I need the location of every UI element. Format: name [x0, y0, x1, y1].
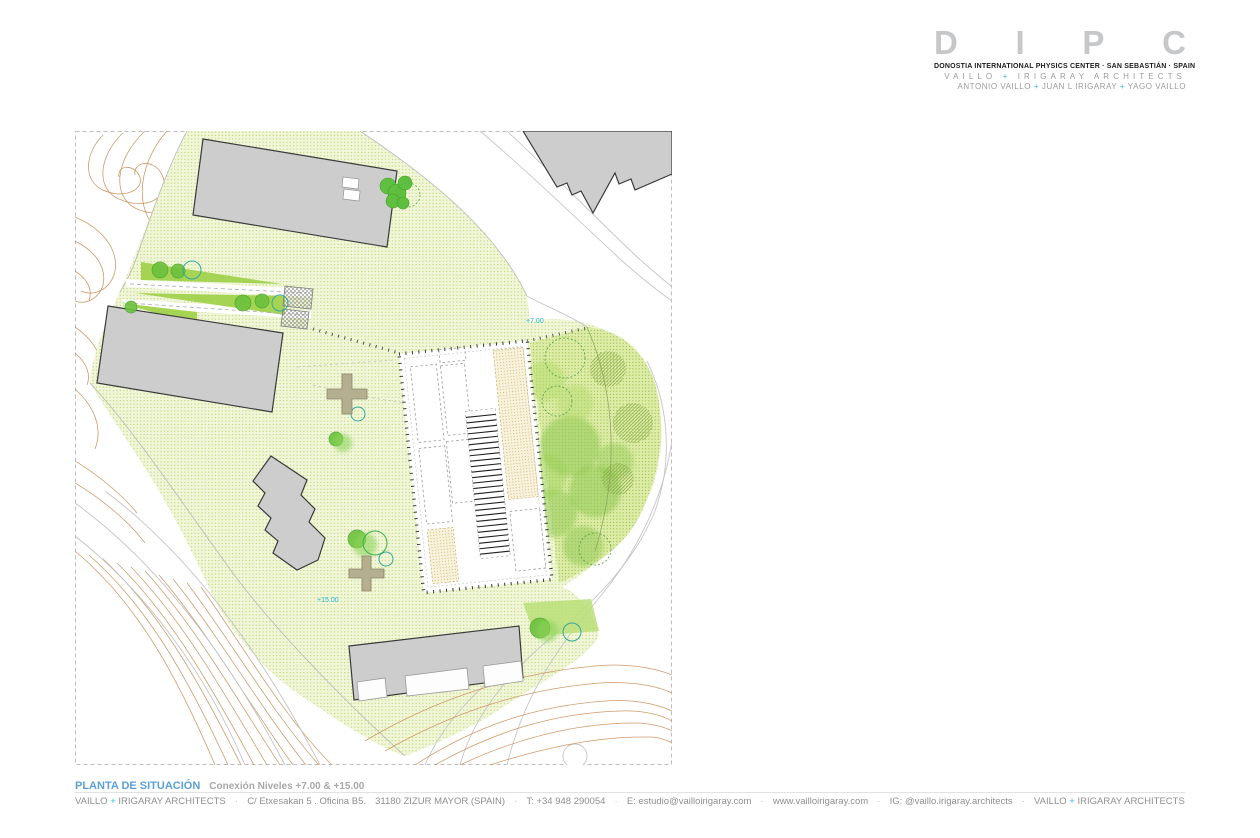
footer-firm-b: IRIGARAY ARCHITECTS	[118, 796, 225, 807]
footer-firm-2: VAILLO + IRIGARAY ARCHITECTS	[1034, 796, 1185, 807]
logo-letter-d: D	[934, 28, 958, 60]
firm-name-b: IRIGARAY ARCHITECTS	[1018, 72, 1186, 81]
logo-subtitle: DONOSTIA INTERNATIONAL PHYSICS CENTER · …	[934, 63, 1186, 70]
partner-c: YAGO VAILLO	[1128, 82, 1186, 91]
separator-dot: ·	[877, 796, 880, 807]
separator-dot: ·	[235, 796, 238, 807]
plus-sign: +	[110, 796, 116, 807]
site-plan: +7.00 +15.00	[75, 131, 672, 765]
logo-letter-p: P	[1082, 28, 1104, 60]
plus-sign: +	[1069, 796, 1075, 807]
footer-firm2-b: IRIGARAY ARCHITECTS	[1077, 796, 1184, 807]
separator-dot: ·	[761, 796, 764, 807]
partner-a: ANTONIO VAILLO	[957, 82, 1031, 91]
hatch-planting	[613, 403, 653, 443]
stair-ramp	[281, 309, 309, 329]
hatch-planting	[602, 463, 634, 495]
plus-sign: +	[1003, 72, 1012, 81]
separator-dot: ·	[615, 796, 618, 807]
level-label-lower: +15.00	[317, 597, 339, 604]
footer: VAILLO + IRIGARAY ARCHITECTS · C/ Etxesa…	[75, 796, 1185, 807]
hatch-planting	[590, 351, 626, 387]
logo-block: D I P C DONOSTIA INTERNATIONAL PHYSICS C…	[934, 28, 1186, 91]
drawing-title: PLANTA DE SITUACIÓN	[75, 780, 200, 792]
sheet: D I P C DONOSTIA INTERNATIONAL PHYSICS C…	[0, 0, 1260, 838]
logo-partners-line: ANTONIO VAILLO + JUAN L IRIGARAY + YAGO …	[934, 82, 1186, 91]
footer-address: C/ Etxesakan 5 . Oficina B5.	[247, 796, 366, 807]
footer-website: www.vailloirigaray.com	[773, 796, 868, 807]
footer-firm2-a: VAILLO	[1034, 796, 1067, 807]
firm-name-a: VAILLO	[944, 72, 996, 81]
building-northeast	[523, 131, 672, 213]
footer-firm-a: VAILLO	[75, 796, 108, 807]
footer-city: 31180 ZIZUR MAYOR (SPAIN)	[375, 796, 505, 807]
footer-divider	[75, 792, 1185, 793]
plus-sign: +	[1120, 82, 1125, 91]
partner-b: JUAN L IRIGARAY	[1042, 82, 1117, 91]
level-label-upper: +7.00	[526, 318, 544, 325]
plus-sign: +	[1034, 82, 1039, 91]
dipc-logo: D I P C	[934, 28, 1186, 60]
logo-letter-c: C	[1162, 28, 1186, 60]
logo-letter-i: I	[1016, 28, 1025, 60]
patio-hatch	[427, 527, 458, 583]
logo-firm-line: VAILLO + IRIGARAY ARCHITECTS	[934, 72, 1186, 81]
main-building	[399, 341, 552, 593]
footer-email: E: estudio@vailloirigaray.com	[627, 796, 752, 807]
drawing-subtitle: Conexión Niveles +7.00 & +15.00	[209, 781, 364, 792]
footer-phone: T: +34 948 290054	[526, 796, 605, 807]
separator-dot: ·	[1022, 796, 1025, 807]
footer-instagram: IG: @vaillo.irigaray.architects	[890, 796, 1013, 807]
footer-firm: VAILLO + IRIGARAY ARCHITECTS	[75, 796, 226, 807]
separator-dot: ·	[514, 796, 517, 807]
